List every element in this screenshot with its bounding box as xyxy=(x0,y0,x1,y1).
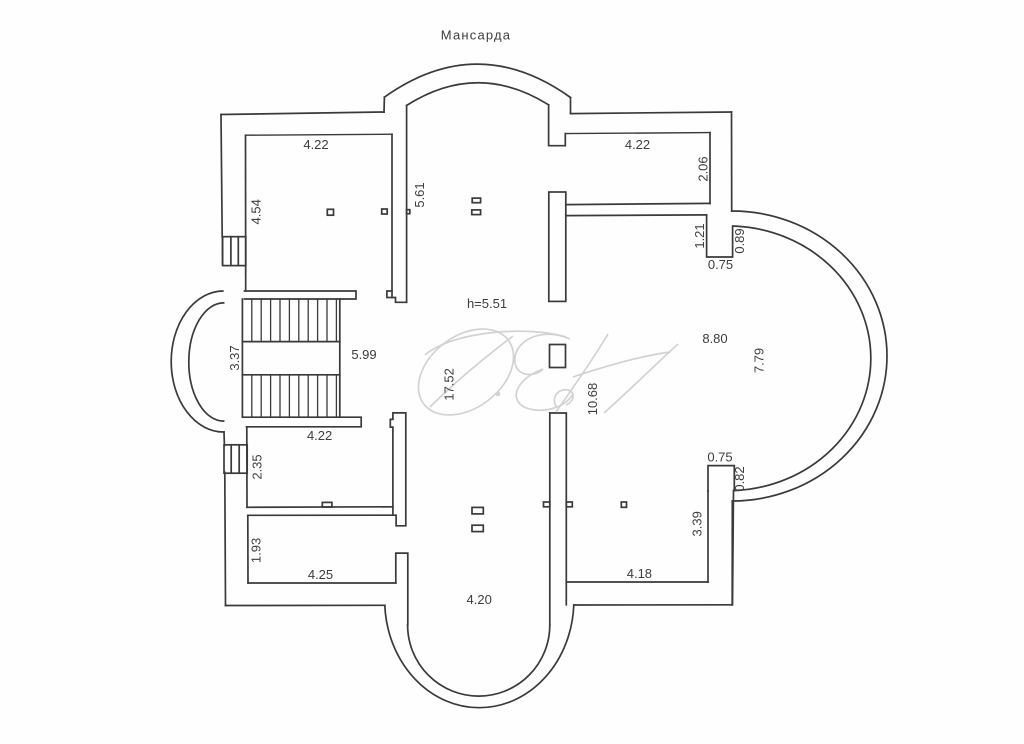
svg-text:4.22: 4.22 xyxy=(303,137,328,152)
svg-text:17.52: 17.52 xyxy=(441,368,456,401)
svg-text:7.79: 7.79 xyxy=(752,348,767,373)
svg-text:h=5.51: h=5.51 xyxy=(467,296,507,311)
svg-text:3.37: 3.37 xyxy=(227,345,242,370)
svg-text:0.89: 0.89 xyxy=(732,228,747,253)
svg-text:2.35: 2.35 xyxy=(249,454,264,479)
svg-text:8.80: 8.80 xyxy=(702,331,727,346)
svg-text:4.18: 4.18 xyxy=(627,566,652,581)
svg-text:0.75: 0.75 xyxy=(708,257,733,272)
svg-text:4.54: 4.54 xyxy=(249,199,264,224)
svg-text:3.39: 3.39 xyxy=(690,511,705,536)
svg-text:4.22: 4.22 xyxy=(625,137,650,152)
svg-text:4.20: 4.20 xyxy=(467,592,492,607)
svg-text:4.25: 4.25 xyxy=(308,567,333,582)
svg-text:0.75: 0.75 xyxy=(707,450,732,465)
svg-text:4.22: 4.22 xyxy=(307,428,332,443)
svg-text:1.93: 1.93 xyxy=(249,538,264,563)
svg-text:10.68: 10.68 xyxy=(585,383,600,416)
svg-text:Мансарда: Мансарда xyxy=(441,28,511,43)
svg-text:1.21: 1.21 xyxy=(692,223,707,248)
svg-text:5.99: 5.99 xyxy=(351,347,376,362)
svg-text:0.82: 0.82 xyxy=(732,466,747,491)
svg-text:5.61: 5.61 xyxy=(412,182,427,207)
svg-text:2.06: 2.06 xyxy=(696,156,711,181)
